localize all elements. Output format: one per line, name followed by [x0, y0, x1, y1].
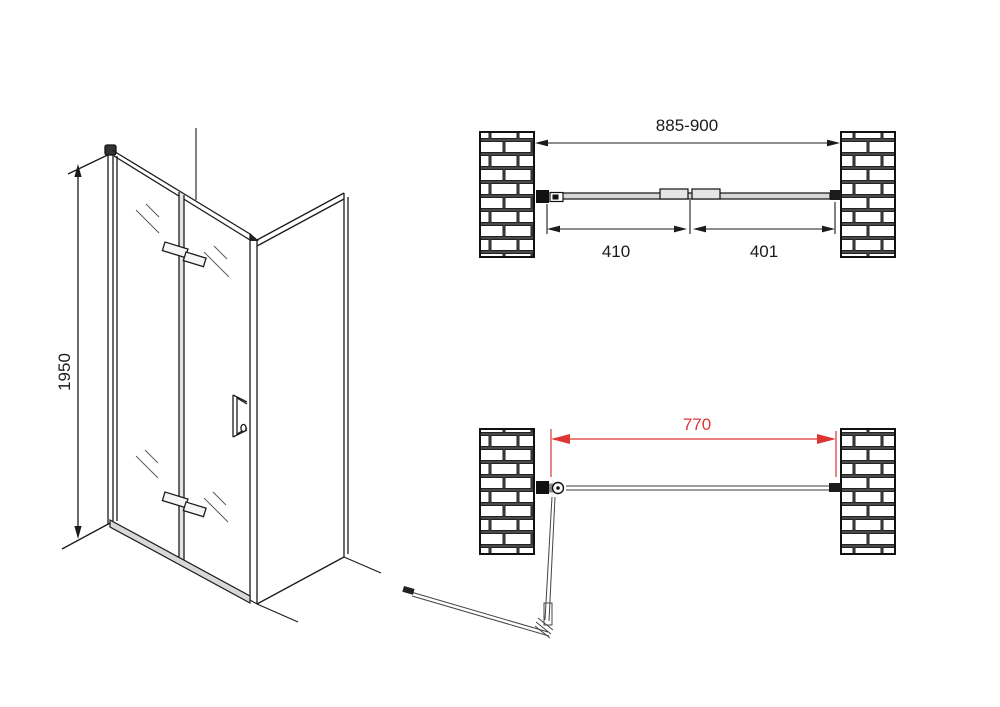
door-top-frame [112, 150, 259, 241]
panel-dimensions [547, 200, 835, 234]
wall-hinge-left [536, 190, 563, 203]
brick-wall-left [480, 429, 534, 554]
wall-bracket-right [829, 483, 841, 492]
brick-wall-right [841, 429, 895, 554]
overall-width-label: 885-900 [656, 116, 718, 135]
top-wall-bracket [105, 145, 116, 155]
arrow-right-icon [827, 140, 840, 147]
plan-view-closed: 885-900 410 401 [480, 116, 895, 261]
arrow-down-icon [74, 526, 81, 539]
arrow-left-icon [551, 434, 570, 444]
door-handle [233, 395, 247, 437]
iso-view: 1950 [55, 128, 381, 622]
height-dimension-label: 1950 [55, 353, 74, 391]
brick-wall-left [480, 132, 534, 257]
door-glass-plan [566, 486, 830, 490]
technical-drawing-page: 1950 [0, 0, 1000, 707]
plan-view-open: 770 [402, 415, 895, 638]
overall-width-dimension [535, 140, 840, 147]
open-door-handle-tip [402, 586, 414, 595]
clear-opening-label: 770 [683, 415, 711, 434]
floor-lines [250, 557, 381, 622]
return-panel [257, 193, 348, 604]
arrow-left-icon [535, 140, 548, 147]
left-panel-dimension-label: 410 [602, 242, 630, 261]
clear-opening-dimension [551, 429, 836, 477]
brick-wall-right [841, 132, 895, 257]
drawing-canvas: 1950 [0, 0, 1000, 707]
wall-hinge-left [536, 481, 564, 494]
right-panel-dimension-label: 401 [750, 242, 778, 261]
door-left-frame [105, 145, 117, 524]
wall-bracket-right [830, 190, 841, 200]
arrow-right-icon [817, 434, 836, 444]
